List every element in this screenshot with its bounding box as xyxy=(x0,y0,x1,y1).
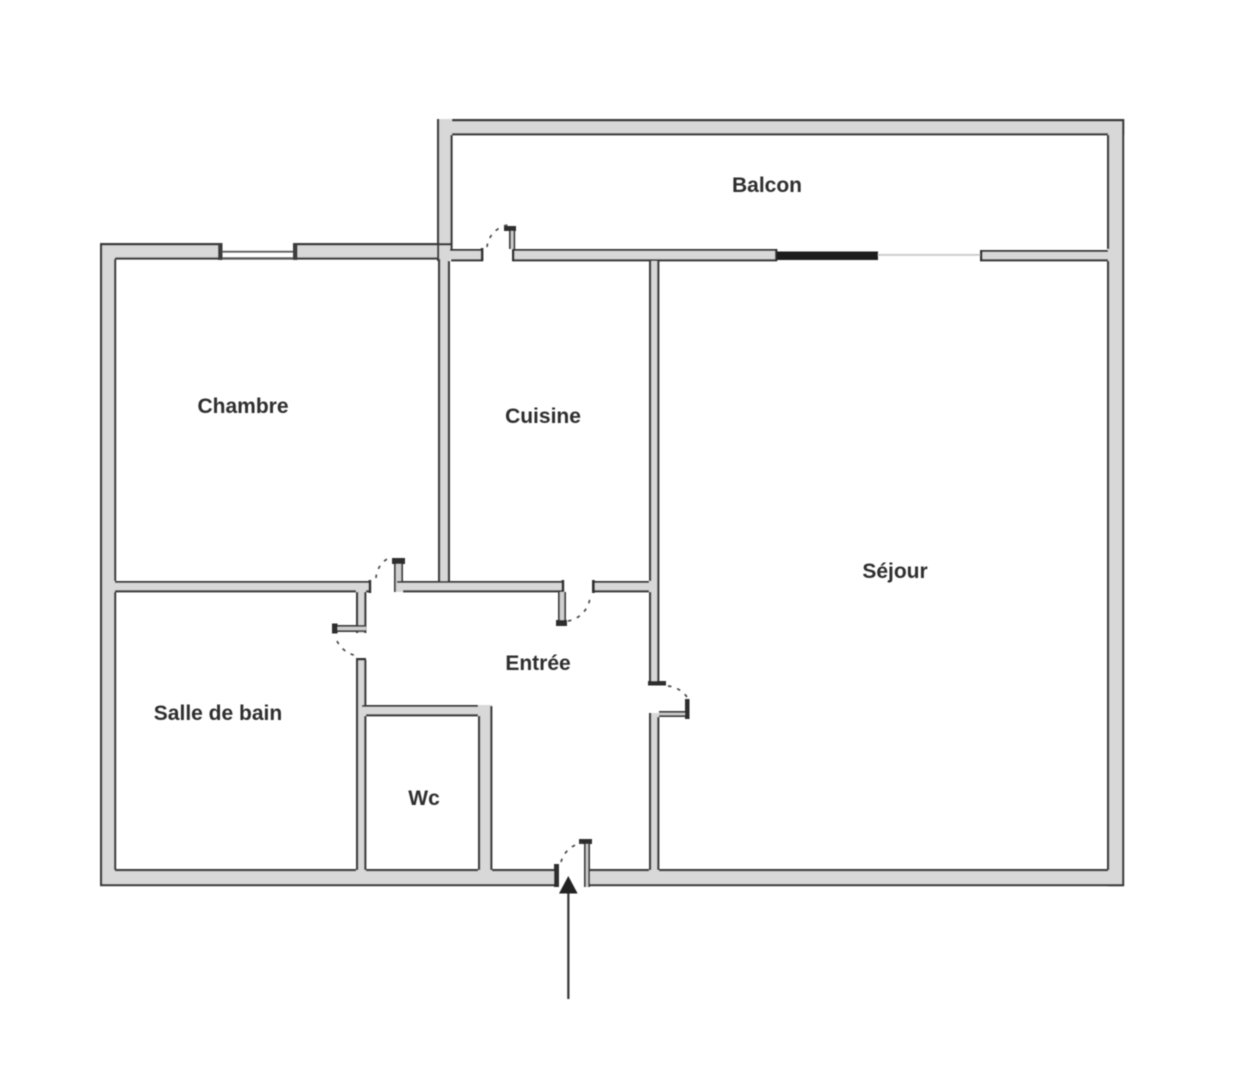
svg-text:Salle de bain: Salle de bain xyxy=(154,702,282,725)
svg-text:Wc: Wc xyxy=(408,787,440,810)
svg-text:Balcon: Balcon xyxy=(732,174,802,197)
svg-text:Séjour: Séjour xyxy=(862,560,927,583)
svg-text:Chambre: Chambre xyxy=(197,395,288,418)
svg-text:Cuisine: Cuisine xyxy=(505,405,581,428)
svg-text:Entrée: Entrée xyxy=(505,652,570,675)
